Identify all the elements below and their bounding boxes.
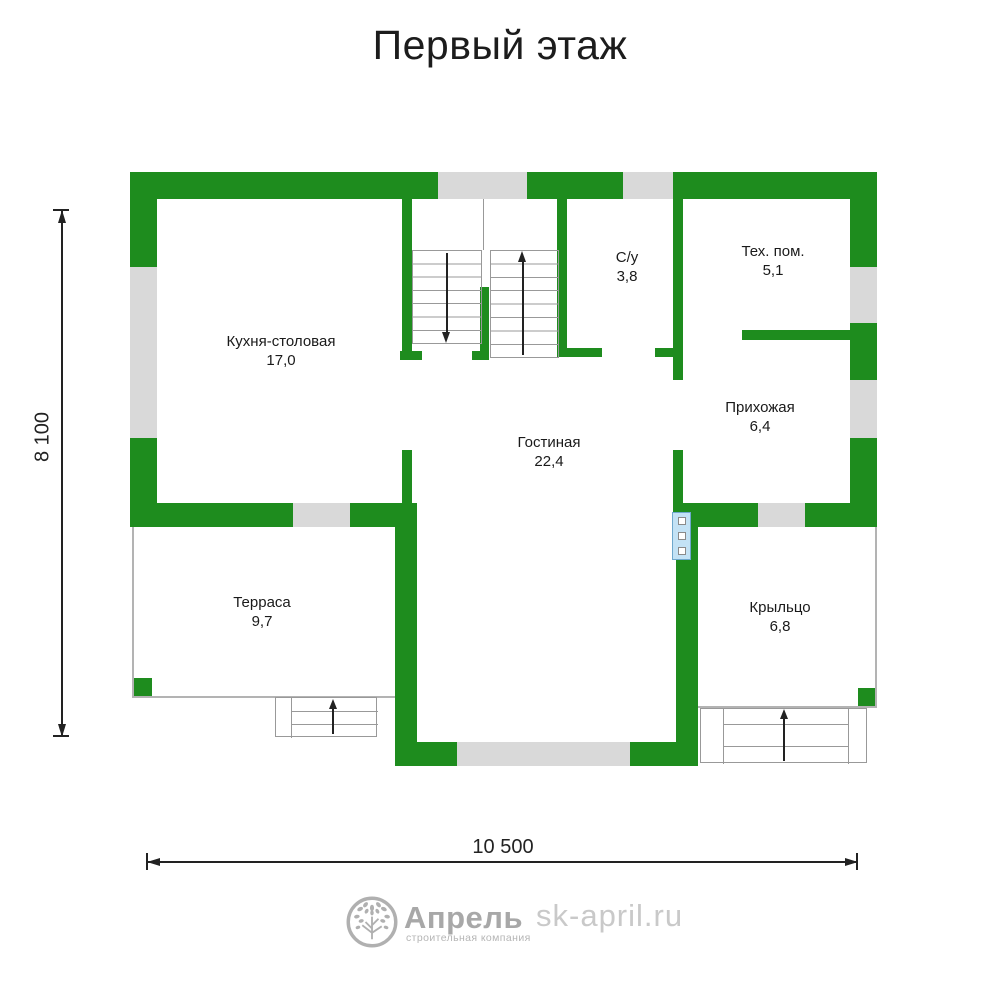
width-dimension-label: 10 500 [472, 836, 533, 859]
window-kitchen-bottom [293, 503, 350, 527]
door-pane [678, 547, 686, 555]
step-line [291, 711, 378, 712]
window-porch-top [758, 503, 805, 527]
wall-living-left [395, 527, 417, 766]
door-pane [678, 517, 686, 525]
room-name: Гостиная [518, 433, 581, 452]
stair-down-arrow-head [442, 332, 450, 343]
step-line [723, 709, 724, 764]
wall-tech-bottom [742, 330, 850, 340]
window-living-bottom [457, 742, 630, 766]
width-dimension-tick-left [146, 853, 148, 870]
wall-kitchen-partition-lower [402, 450, 412, 503]
wall-right [850, 199, 877, 527]
room-label-tech: Тех. пом. 5,1 [741, 242, 804, 280]
website-link: sk-april.ru [536, 898, 683, 934]
height-dimension-line [61, 210, 63, 737]
room-label-hall: Прихожая 6,4 [725, 398, 795, 436]
room-name: Прихожая [725, 398, 795, 417]
stair-flight-up [490, 250, 559, 358]
wall-kitchen-bottom [130, 503, 417, 527]
company-subtitle: строительная компания [406, 932, 531, 944]
room-name: Крыльцо [749, 598, 810, 617]
width-dimension-arrow-left [147, 858, 160, 866]
wall-stair-divider-foot [472, 351, 489, 360]
page-title: Первый этаж [0, 22, 1000, 69]
room-area: 22,4 [518, 452, 581, 471]
wall-hall-living [673, 450, 683, 503]
stair-up-arrow [522, 262, 524, 355]
porch-entry-arrow-head [780, 709, 788, 719]
room-area: 6,4 [725, 417, 795, 436]
entrance-door-icon [672, 512, 691, 560]
room-label-su: С/у 3,8 [616, 248, 639, 286]
stair-landing-divider [483, 199, 484, 250]
step-line [291, 698, 292, 738]
height-dimension-label: 8 100 [32, 412, 55, 462]
room-area: 6,8 [749, 617, 810, 636]
room-name: С/у [616, 248, 639, 267]
window-right-1 [850, 267, 877, 323]
width-dimension-line [147, 861, 858, 863]
room-label-kitchen: Кухня-столовая 17,0 [227, 332, 336, 370]
wall-su-door-stub-left [557, 348, 602, 357]
step-line [723, 746, 848, 747]
room-area: 9,7 [233, 612, 291, 631]
room-name: Тех. пом. [741, 242, 804, 261]
room-name: Кухня-столовая [227, 332, 336, 351]
room-label-porch: Крыльцо 6,8 [749, 598, 810, 636]
company-name: Апрель [404, 900, 523, 936]
terrace-entry-arrow-head [329, 699, 337, 709]
room-area: 3,8 [616, 267, 639, 286]
step-line [723, 724, 848, 725]
wall-kitchen-partition-foot [400, 351, 422, 360]
company-logo-icon [345, 895, 399, 949]
height-dimension-tick-top [53, 209, 69, 211]
porch-entry-arrow [783, 719, 785, 761]
step-line [848, 709, 849, 764]
window-left [130, 267, 157, 438]
height-dimension-tick-bottom [53, 735, 69, 737]
door-pane [678, 532, 686, 540]
room-label-living: Гостиная 22,4 [518, 433, 581, 471]
wall-su-right [673, 199, 683, 380]
window-right-2 [850, 380, 877, 438]
room-area: 5,1 [741, 261, 804, 280]
room-label-terrace: Терраса 9,7 [233, 593, 291, 631]
step-line [291, 724, 378, 725]
wall-kitchen-partition-upper [402, 199, 412, 360]
stair-down-arrow [446, 253, 448, 335]
room-name: Терраса [233, 593, 291, 612]
window-top-1 [438, 172, 527, 199]
window-top-2 [623, 172, 673, 199]
terrace-steps [275, 697, 377, 737]
width-dimension-tick-right [856, 853, 858, 870]
floor-plan-page: Первый этаж [0, 0, 1000, 1000]
stair-up-arrow-head [518, 251, 526, 262]
terrace-entry-arrow [332, 709, 334, 734]
room-area: 17,0 [227, 351, 336, 370]
height-dimension-arrow-top [58, 210, 66, 223]
